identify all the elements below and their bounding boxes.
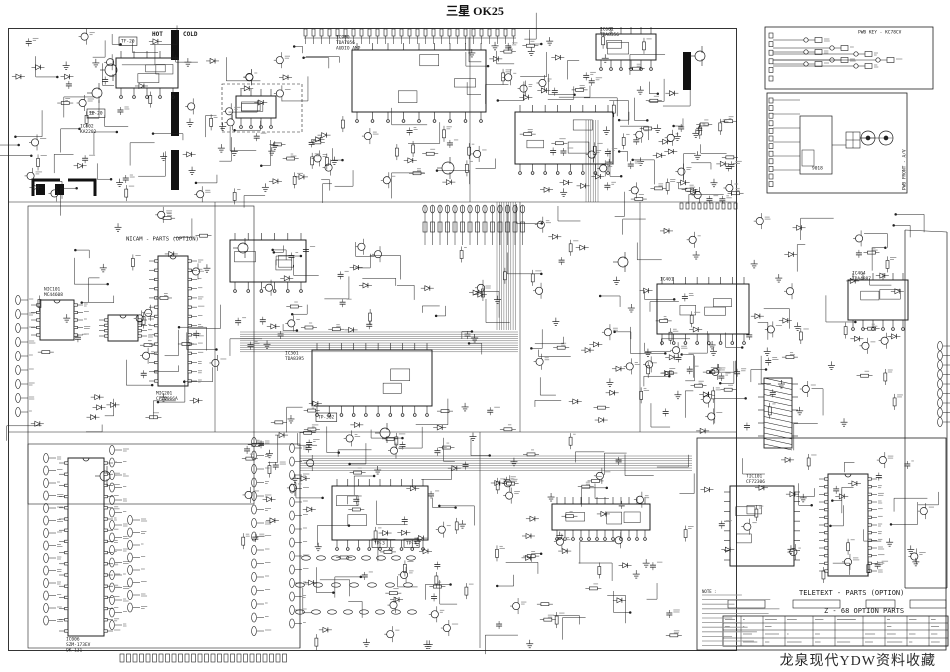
- diode: [408, 158, 413, 163]
- wire: [524, 13, 536, 39]
- wire: [86, 425, 102, 432]
- label-text: Z - 68 OPTION PARTS: [824, 607, 904, 615]
- dip-pin: [104, 529, 108, 531]
- diode: [693, 327, 698, 332]
- pad-oval: [290, 497, 295, 506]
- resistor: [799, 332, 802, 340]
- wire: [273, 250, 286, 260]
- connector-pin: [710, 203, 713, 209]
- dip-pin: [868, 493, 872, 495]
- pin-pad: [402, 120, 405, 123]
- dip-pin: [104, 462, 108, 464]
- diode: [473, 290, 478, 295]
- connector-pin: [769, 166, 773, 171]
- pin-pad: [731, 342, 734, 345]
- wire: [105, 115, 128, 127]
- dip-pin: [104, 551, 108, 553]
- resistor: [555, 142, 563, 145]
- wire: [294, 47, 303, 54]
- connector-pin: [304, 29, 307, 36]
- wire: [715, 398, 746, 423]
- junction-dot: [455, 507, 457, 509]
- wire: [549, 74, 575, 95]
- pin-pad: [672, 342, 675, 345]
- connector-pin: [192, 654, 196, 662]
- resistor: [622, 137, 625, 145]
- dip-pin: [188, 287, 192, 289]
- pad-oval: [290, 551, 295, 560]
- transistor: [881, 337, 888, 344]
- diode: [580, 245, 585, 250]
- connector-pin: [224, 654, 228, 662]
- pad-oval: [252, 599, 257, 608]
- dip-pin: [74, 311, 78, 313]
- key-cap: [887, 58, 894, 63]
- resistor: [455, 522, 458, 530]
- wire: [485, 635, 518, 654]
- connector-pin: [496, 29, 499, 36]
- dip-pin: [188, 324, 192, 326]
- resistor: [465, 587, 468, 595]
- connector-pin: [512, 29, 515, 36]
- resistor: [304, 431, 312, 434]
- diode: [669, 355, 674, 360]
- label-text: NOTE :: [702, 589, 716, 594]
- resistor: [354, 471, 362, 474]
- key-cap: [865, 52, 872, 57]
- dip-pin: [825, 485, 829, 487]
- wire: [332, 148, 342, 160]
- transistor: [31, 139, 38, 146]
- wire: [497, 575, 513, 586]
- power-transistor: [442, 162, 454, 174]
- pin-pad: [260, 126, 263, 129]
- pin-pad: [286, 290, 289, 293]
- wire: [764, 417, 792, 423]
- pad-oval: [350, 583, 359, 587]
- resistor: [724, 388, 732, 391]
- pad-oval: [290, 524, 295, 533]
- isolation-bar: [36, 184, 45, 195]
- diode: [194, 398, 199, 403]
- dip-pin: [65, 585, 69, 587]
- ic-inner-block: [713, 299, 731, 307]
- wire: [97, 163, 111, 179]
- transistor: [390, 601, 397, 608]
- resistor: [341, 120, 344, 128]
- junction-dot: [890, 523, 892, 525]
- resistor: [496, 482, 499, 490]
- option-slot: [910, 600, 946, 608]
- dip-pin: [188, 269, 192, 271]
- ic-inner-block: [336, 496, 358, 506]
- pad-oval: [128, 540, 133, 549]
- key-switch: [830, 46, 834, 50]
- wire: [74, 258, 107, 284]
- diode: [610, 390, 615, 395]
- wire: [644, 343, 671, 351]
- connector-pin: [283, 654, 287, 662]
- connector-pin: [185, 654, 189, 662]
- pad-oval: [16, 323, 21, 332]
- junction-dot: [530, 348, 532, 350]
- dip-pin: [138, 324, 142, 326]
- dip-pin: [868, 485, 872, 487]
- schematic-label: IC404TDA4887: [852, 271, 871, 283]
- junction-dot: [831, 500, 833, 502]
- wire: [467, 82, 481, 94]
- pin-pad: [120, 96, 123, 99]
- diode: [35, 65, 40, 70]
- ic-chip: [116, 58, 178, 88]
- ic-inner-block: [573, 120, 592, 130]
- label-text: IC802KA2202: [80, 124, 97, 136]
- diode: [95, 395, 100, 400]
- junction-dot: [273, 251, 275, 253]
- junction-dot: [606, 487, 608, 489]
- pad-oval: [110, 445, 115, 454]
- transistor: [556, 538, 563, 545]
- dip-pin: [65, 619, 69, 621]
- pad-oval: [252, 559, 257, 568]
- diode: [425, 286, 430, 291]
- connector-pin: [704, 203, 707, 209]
- transistor: [631, 187, 638, 194]
- pin-pad: [413, 414, 416, 417]
- wire: [338, 450, 371, 457]
- wire: [443, 438, 454, 461]
- resistor: [666, 183, 669, 191]
- pin-pad: [411, 548, 414, 551]
- wire: [219, 137, 231, 161]
- schematic-label: NOTE :: [702, 589, 716, 594]
- pin-pad: [387, 120, 390, 123]
- resistor: [755, 509, 758, 517]
- diode: [617, 598, 622, 603]
- resistor: [569, 244, 572, 252]
- wire: [475, 291, 499, 317]
- transistor: [520, 85, 527, 92]
- resistor: [726, 156, 734, 159]
- resistor: [712, 391, 715, 399]
- diode: [681, 180, 686, 185]
- pad-oval: [16, 379, 21, 388]
- transistor: [81, 33, 88, 40]
- diode: [78, 163, 83, 168]
- ic-inner-block: [736, 534, 751, 543]
- dip-pin: [825, 501, 829, 503]
- dip-pin: [65, 551, 69, 553]
- connector-pin: [140, 654, 144, 662]
- wire: [600, 296, 620, 307]
- schematic-label: TP-20: [89, 111, 103, 117]
- pad-oval: [290, 457, 295, 466]
- wire: [905, 230, 947, 232]
- transistor: [678, 168, 685, 175]
- resistor: [412, 145, 415, 153]
- connector-pin: [769, 182, 773, 187]
- junction-dot: [719, 382, 721, 384]
- junction-dot: [332, 592, 334, 594]
- wire: [130, 143, 155, 166]
- pin-pad: [596, 538, 599, 541]
- junction-dot: [348, 525, 350, 527]
- wire: [7, 426, 42, 441]
- connector-pin: [424, 29, 427, 36]
- wire: [682, 354, 694, 377]
- transistor: [226, 108, 233, 115]
- dip-pin: [104, 473, 108, 475]
- wire: [235, 121, 261, 131]
- wire: [647, 583, 657, 599]
- transistor: [604, 329, 611, 336]
- junction-dot: [765, 369, 767, 371]
- junction-dot: [296, 330, 298, 332]
- key-switch: [876, 58, 880, 62]
- transistor: [265, 284, 272, 291]
- junction-dot: [540, 273, 542, 275]
- diode: [573, 399, 578, 404]
- pin-pad: [247, 290, 250, 293]
- pad-oval: [44, 541, 49, 550]
- pin-pad: [133, 96, 136, 99]
- dip-pin: [65, 507, 69, 509]
- wire: [539, 350, 571, 357]
- diode: [383, 531, 388, 536]
- dip-pin: [65, 462, 69, 464]
- diode: [401, 530, 406, 535]
- diode: [270, 518, 275, 523]
- pin-pad: [696, 342, 699, 345]
- dip-pin: [105, 329, 109, 331]
- dip-pin: [65, 518, 69, 520]
- wire: [408, 122, 440, 143]
- key-cap: [841, 46, 848, 51]
- transistor: [358, 243, 365, 250]
- wire: [637, 243, 662, 260]
- pin-pad: [159, 96, 162, 99]
- front-module-sub: [802, 150, 814, 166]
- resistor: [125, 189, 128, 197]
- ic-chip: [730, 486, 794, 566]
- dip-pin: [868, 554, 872, 556]
- wire: [691, 163, 711, 170]
- connector-pin: [312, 29, 315, 36]
- power-transistor: [618, 257, 628, 267]
- connector-pin: [153, 654, 157, 662]
- junction-dot: [632, 159, 634, 161]
- resistor: [893, 398, 896, 406]
- diode: [785, 457, 790, 462]
- wire: [864, 233, 887, 247]
- resistor: [844, 327, 847, 335]
- pin-pad: [240, 126, 243, 129]
- resistor: [555, 616, 558, 624]
- wire: [619, 112, 629, 120]
- diode: [258, 100, 263, 105]
- pin-pad: [544, 172, 547, 175]
- dip-pin: [188, 278, 192, 280]
- wire: [298, 433, 317, 445]
- junction-dot: [373, 475, 375, 477]
- diode: [153, 39, 158, 44]
- junction-dot: [56, 76, 58, 78]
- resistor: [85, 115, 88, 123]
- wire: [397, 285, 414, 300]
- label-text: TF-20: [121, 39, 135, 45]
- connector-pin: [769, 76, 773, 81]
- dip-pin: [74, 334, 78, 336]
- label-text: NIC101MC44608: [44, 287, 63, 299]
- dip-pin: [825, 478, 829, 480]
- pad-oval: [290, 443, 295, 452]
- teletext-frame: [697, 438, 946, 650]
- label-text: TIC101CF72306: [746, 474, 765, 486]
- pad-oval: [110, 533, 115, 542]
- connector-pin: [769, 59, 773, 64]
- resistor: [569, 437, 572, 445]
- connector-pin: [120, 654, 124, 662]
- resistor: [650, 99, 658, 102]
- power-transistor: [92, 88, 102, 98]
- diode: [309, 580, 314, 585]
- diode: [783, 318, 788, 323]
- junction-dot: [81, 302, 83, 304]
- diode: [581, 183, 586, 188]
- wire: [615, 192, 625, 217]
- wire: [833, 563, 850, 575]
- pad-oval: [110, 458, 115, 467]
- junction-dot: [30, 155, 32, 157]
- wire: [268, 435, 278, 462]
- wire: [421, 469, 451, 480]
- junction-dot: [291, 313, 293, 315]
- pad-oval: [290, 565, 295, 574]
- key-switch: [854, 52, 858, 56]
- wire: [651, 403, 670, 427]
- dip-pin: [868, 547, 872, 549]
- transistor: [474, 150, 481, 157]
- pad-oval: [128, 590, 133, 599]
- transistor: [431, 611, 438, 618]
- junction-dot: [216, 349, 218, 351]
- pad-oval: [317, 556, 326, 560]
- dip-pin: [868, 524, 872, 526]
- resistor: [598, 406, 606, 409]
- junction-dot: [681, 354, 683, 356]
- junction-dot: [668, 375, 670, 377]
- junction-dot: [895, 214, 897, 216]
- junction-dot: [152, 133, 154, 135]
- schematic-label: PWB FRONT - A/V: [902, 149, 908, 190]
- junction-dot: [435, 315, 437, 317]
- transistor: [636, 496, 643, 503]
- connector-pin: [368, 29, 371, 36]
- wire: [335, 170, 353, 186]
- wire: [799, 483, 812, 505]
- pad-oval: [110, 558, 115, 567]
- dip-pin: [155, 361, 159, 363]
- dip-pin: [155, 324, 159, 326]
- diode: [446, 180, 451, 185]
- junction-dot: [342, 159, 344, 161]
- wire: [355, 254, 371, 268]
- resistor: [695, 384, 703, 387]
- ic-inner-block: [156, 64, 173, 73]
- connector-pin: [159, 654, 163, 662]
- diode: [354, 265, 359, 270]
- pad-oval: [110, 620, 115, 629]
- pad-oval: [110, 470, 115, 479]
- resistor: [442, 130, 445, 138]
- pad-oval: [938, 360, 943, 369]
- wire: [529, 30, 541, 44]
- transistor: [596, 472, 603, 479]
- pin-pad: [569, 172, 572, 175]
- dip-pin: [104, 619, 108, 621]
- ic-inner-block: [705, 307, 726, 315]
- nicam-frame: [28, 206, 254, 504]
- pin-pad: [371, 120, 374, 123]
- pin-pad: [300, 290, 303, 293]
- ic-chip: [657, 284, 749, 334]
- wire: [826, 295, 855, 322]
- wire: [619, 152, 628, 162]
- junction-dot: [349, 463, 351, 465]
- transistor: [535, 287, 542, 294]
- schematic-canvas: HOTCOLDNICAM - PARTS (OPTION)TELETEXT - …: [0, 0, 950, 672]
- wire: [520, 52, 547, 77]
- dip-pin: [155, 306, 159, 308]
- connector-pin: [328, 29, 331, 36]
- wire: [398, 576, 418, 587]
- connector-pin: [769, 33, 773, 38]
- pad-oval: [44, 578, 49, 587]
- pad-oval: [404, 583, 413, 587]
- wire: [61, 129, 80, 153]
- transistor: [289, 484, 296, 491]
- resistor: [527, 555, 535, 558]
- wire: [274, 245, 284, 252]
- connector-pin: [769, 151, 773, 156]
- wire: [633, 160, 655, 185]
- connector-pin: [218, 654, 222, 662]
- wire: [317, 526, 349, 546]
- wire: [644, 376, 669, 386]
- diode: [623, 563, 628, 568]
- pad-oval: [16, 337, 21, 346]
- pin-pad: [580, 538, 583, 541]
- ic-inner-block: [383, 383, 401, 393]
- schematic-label: IC802KA2202: [80, 124, 97, 136]
- dip-pin: [104, 495, 108, 497]
- junction-dot: [620, 175, 622, 177]
- diode: [354, 422, 359, 427]
- diode: [90, 415, 95, 420]
- pin-pad: [644, 538, 647, 541]
- pad-oval: [314, 583, 323, 587]
- wire: [122, 44, 155, 65]
- pin-pad: [556, 172, 559, 175]
- wire: [179, 327, 206, 350]
- wire: [563, 617, 586, 639]
- diode: [284, 276, 289, 281]
- diode: [299, 174, 304, 179]
- pad-oval: [110, 608, 115, 617]
- diode: [544, 187, 549, 192]
- ic-chip: [332, 486, 428, 540]
- schematic-label: TP-3: [374, 541, 385, 547]
